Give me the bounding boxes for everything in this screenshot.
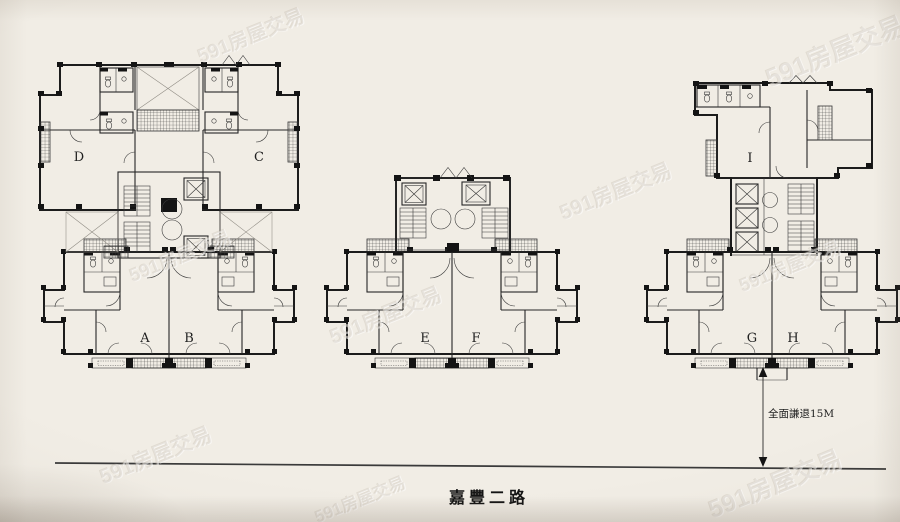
svg-text:591房屋交易: 591房屋交易 <box>96 422 215 489</box>
svg-text:591房屋交易: 591房屋交易 <box>193 3 307 68</box>
watermark-text: 591房屋交易 591房屋交易 <box>96 422 217 490</box>
svg-text:591房屋交易: 591房屋交易 <box>761 10 900 93</box>
building-left: D C A B <box>38 56 300 369</box>
watermark-text: 591房屋交易 591房屋交易 <box>735 235 845 298</box>
unit-label-d: D <box>74 150 84 165</box>
road-label: 嘉豐二路 <box>448 488 529 507</box>
watermark-text: 591房屋交易 591房屋交易 <box>704 444 847 522</box>
unit-label-c: C <box>254 150 264 165</box>
watermark-text: 591房屋交易 591房屋交易 <box>311 472 409 522</box>
unit-label-f: F <box>471 331 480 346</box>
svg-text:591房屋交易: 591房屋交易 <box>556 158 675 225</box>
unit-label-a: A <box>139 331 150 346</box>
unit-label-b: B <box>184 331 194 346</box>
building-right: I G H <box>644 76 900 381</box>
watermark-text: 591房屋交易 591房屋交易 <box>556 158 677 226</box>
svg-text:591房屋交易: 591房屋交易 <box>704 444 846 522</box>
floor-plan-canvas: D C A B E F <box>0 0 900 522</box>
unit-label-g: G <box>747 331 757 346</box>
unit-label-h: H <box>787 331 798 346</box>
watermark-text: 591房屋交易 591房屋交易 <box>193 3 308 69</box>
floorplan-photo: D C A B E F <box>0 0 900 522</box>
road-line <box>55 463 886 469</box>
watermarks: 591房屋交易 591房屋交易 591房屋交易 591房屋交易 591房屋交易 … <box>96 3 900 522</box>
unit-label-e: E <box>420 331 430 346</box>
setback-label: 全面謙退15M <box>768 407 834 420</box>
svg-text:591房屋交易: 591房屋交易 <box>735 235 843 297</box>
unit-label-i: I <box>747 151 752 166</box>
